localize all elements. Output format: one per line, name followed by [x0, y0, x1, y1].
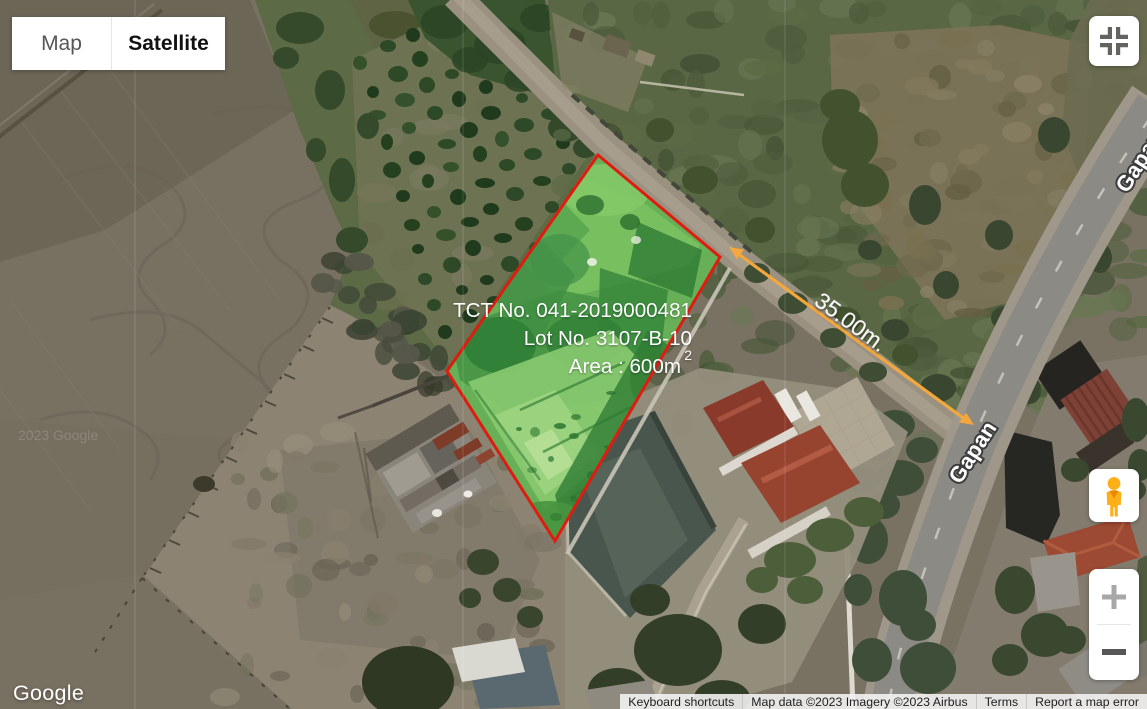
svg-text:TCT No. 041-2019000481: TCT No. 041-2019000481	[453, 299, 692, 322]
svg-text:2023 Google: 2023 Google	[18, 427, 98, 443]
svg-text:2: 2	[684, 347, 692, 363]
svg-text:Lot No. 3107-B-10: Lot No. 3107-B-10	[524, 327, 692, 350]
svg-text:Area : 600m: Area : 600m	[569, 355, 681, 378]
